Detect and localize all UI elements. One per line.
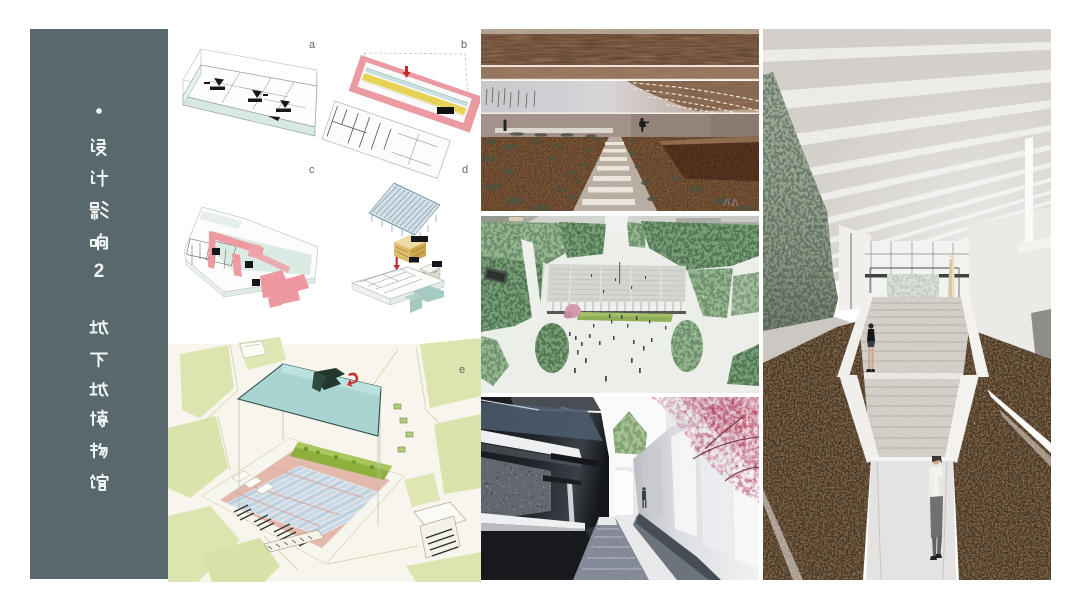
svg-text:a: a: [309, 39, 316, 51]
svg-text:e: e: [459, 364, 465, 376]
svg-text:2: 2: [94, 261, 105, 282]
svg-text:b: b: [461, 39, 467, 51]
svg-text:d: d: [462, 164, 468, 176]
svg-text:c: c: [309, 164, 315, 176]
